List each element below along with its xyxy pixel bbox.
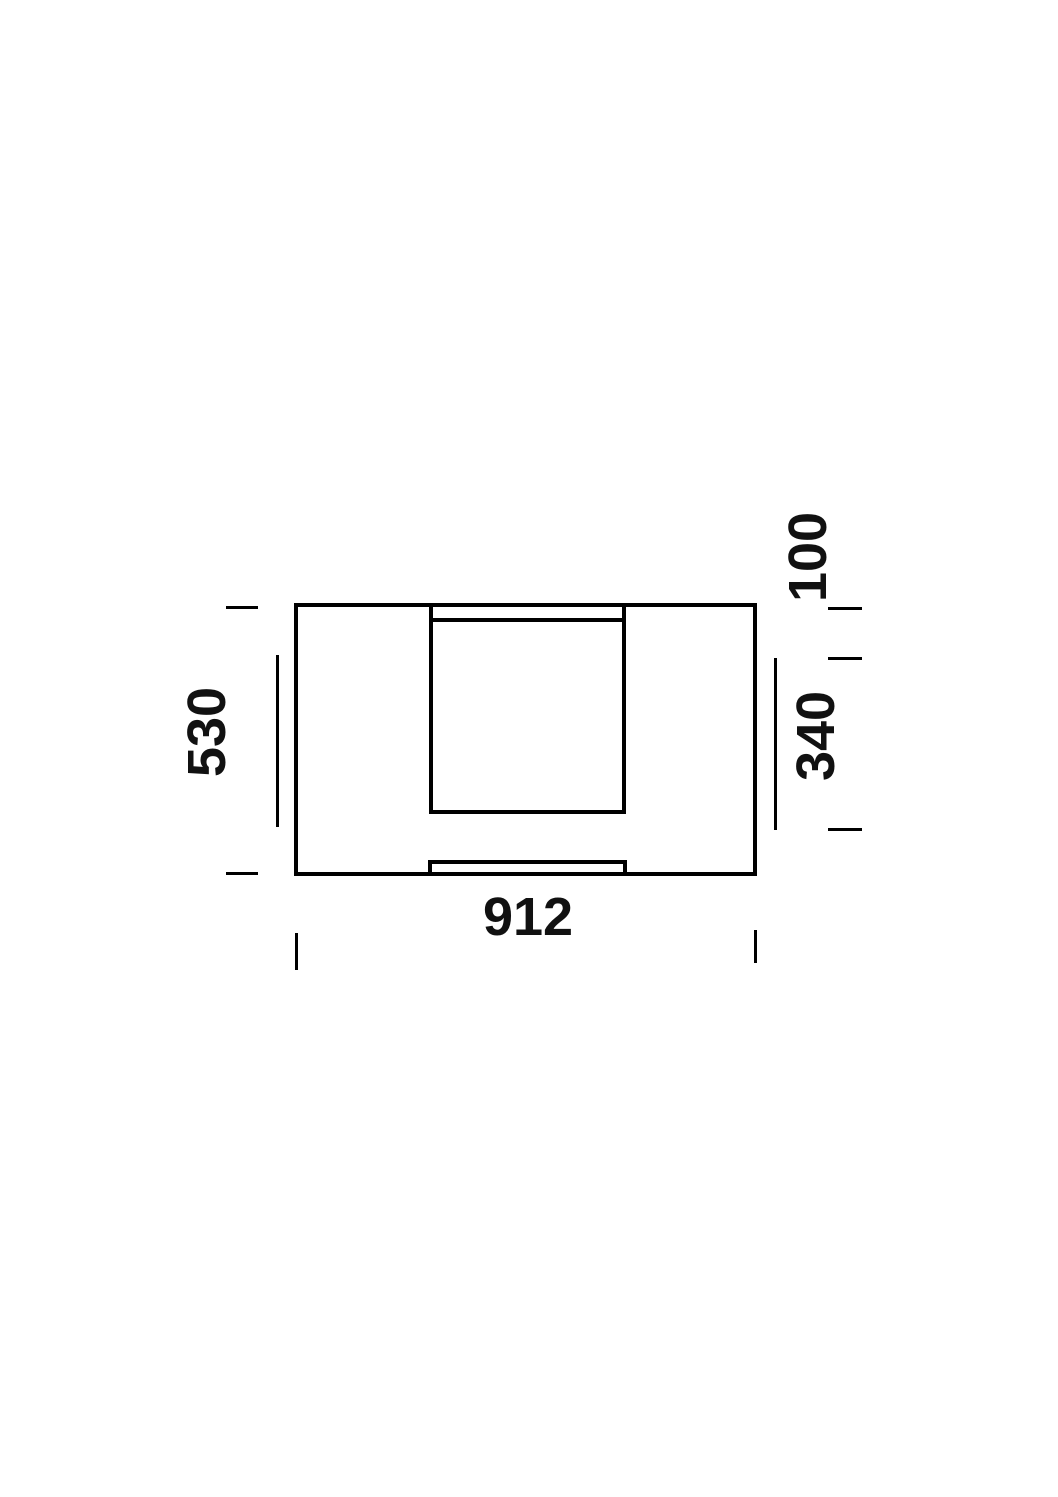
dim-label-100: 100 <box>781 512 835 602</box>
dim-912-tick-left <box>295 933 298 970</box>
dim-label-912: 912 <box>483 890 573 944</box>
dim-530-tick-bottom <box>226 872 258 875</box>
dim-340-dimension-line <box>774 658 777 830</box>
bottom-rail-outline <box>428 860 627 876</box>
dim-100-tick-top <box>828 607 862 610</box>
drawing-sheet: 530 100 340 912 <box>0 0 1058 1497</box>
recess-top-rail-line <box>433 618 622 622</box>
dim-label-530: 530 <box>180 687 234 777</box>
dim-label-340: 340 <box>789 691 843 781</box>
dim-912-tick-right <box>754 930 757 963</box>
dim-100-340-shared-tick <box>828 657 862 660</box>
dim-530-tick-top <box>226 606 258 609</box>
dim-530-dimension-line <box>276 655 279 827</box>
dim-340-tick-bottom <box>828 828 862 831</box>
recess-outline <box>429 603 626 814</box>
